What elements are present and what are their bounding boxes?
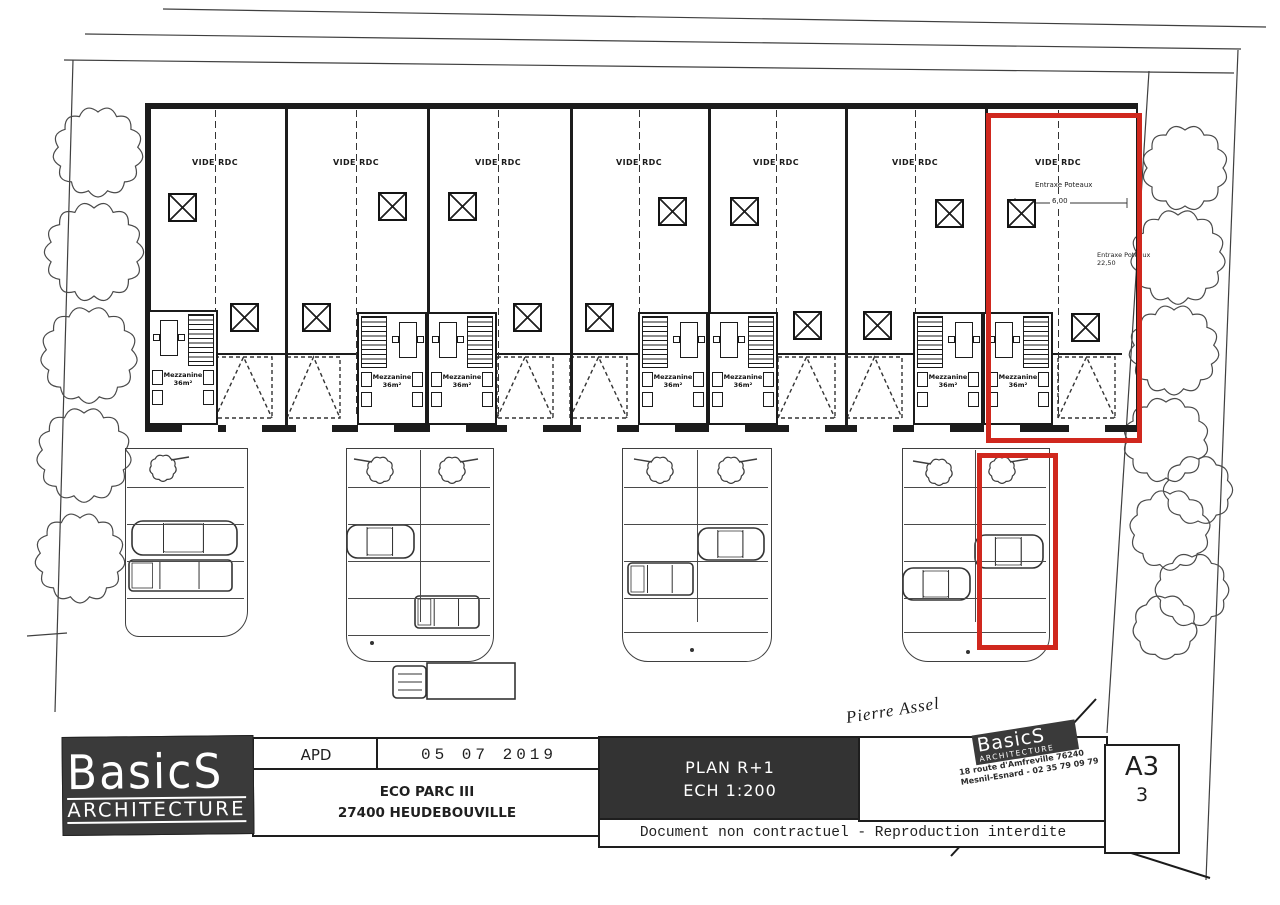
stairs-icon [748,316,774,368]
tree-icon [41,308,137,404]
meeting-table-icon [680,322,698,358]
project-name: ECO PARC III [380,782,474,803]
bay-divider-wall [845,103,848,425]
parking-block [125,448,248,637]
tree-icon [1130,491,1210,570]
parking-column-divider [697,450,698,622]
vide-rdc-label: VIDE RDC [741,158,811,168]
facade-line [778,353,913,355]
meeting-table-icon [439,322,457,358]
plan-title-box: PLAN R+1 ECH 1:200 [598,736,862,822]
desk-icon [431,392,442,407]
vide-rdc-label: VIDE RDC [880,158,950,168]
desk-icon [412,392,423,407]
mezzanine-label: Mezzanine36m² [713,374,773,390]
tree-icon [1129,306,1218,395]
facade-line [218,353,357,355]
door-gap [857,425,893,432]
facade-line [497,353,638,355]
meeting-table-icon [399,322,417,358]
door-gap [709,425,745,432]
stairs-icon [642,316,668,368]
site-boundary-line [1206,50,1238,880]
desk-icon [152,390,163,405]
mezzanine-label: Mezzanine36m² [362,374,422,390]
tree-icon [44,203,143,300]
roof-hatch-icon [378,192,407,221]
loading-door-icon [778,357,835,418]
door-gap [581,425,617,432]
phase-cell: APD [252,737,380,772]
vide-rdc-label: VIDE RDC [604,158,674,168]
stairs-icon [188,314,214,366]
parking-stall-line [127,524,244,525]
tree-icon [1143,126,1226,209]
door-gap [789,425,825,432]
roof-hatch-icon [585,303,614,332]
roof-hatch-icon [168,193,197,222]
parking-stall-line [624,561,768,562]
tree-icon [53,108,142,197]
roof-hatch-icon [935,199,964,228]
door-gap [430,425,466,432]
logo: BasicS ARCHITECTURE [61,735,254,836]
parking-column-divider [420,450,421,622]
date-cell: 05 07 2019 [376,737,602,772]
parking-stall-line [624,632,768,633]
parking-stall-line [624,524,768,525]
sheet-number: 3 [1136,784,1148,806]
mezzanine-room: Mezzanine36m² [638,312,708,425]
desk-icon [361,392,372,407]
plan-scale: ECH 1:200 [683,779,777,802]
desk-icon [712,392,723,407]
tree-icon [35,514,124,603]
mezzanine-label: Mezzanine36m² [432,374,492,390]
loading-door-icon [215,357,272,418]
mezzanine-room: Mezzanine36m² [357,312,427,425]
site-boundary-line [55,60,73,712]
loading-door-icon [287,357,340,418]
highlight-box [986,113,1142,443]
parking-stall-line [348,524,490,525]
door-gap [507,425,543,432]
roof-hatch-icon [230,303,259,332]
parking-stall-line [127,598,244,599]
tree-icon [37,409,131,502]
highlight-box [977,453,1058,650]
desk-icon [203,390,214,405]
tree-icon [1133,596,1197,659]
roof-hatch-icon [658,197,687,226]
vide-rdc-label: VIDE RDC [180,158,250,168]
parking-stall-line [348,487,490,488]
desk-icon [917,392,928,407]
site-boundary-line [163,9,1266,27]
loading-door-icon [570,357,627,418]
desk-icon [968,392,979,407]
door-gap [639,425,675,432]
meeting-table-icon [160,320,178,356]
project-cell: ECO PARC III 27400 HEUDEBOUVILLE [252,768,602,837]
loading-door-icon [497,357,553,418]
door-gap [182,425,218,432]
site-boundary-line [64,60,1234,73]
door-gap [358,425,394,432]
building-top-wall [145,103,1138,109]
mezzanine-label: Mezzanine36m² [918,374,978,390]
desk-icon [763,392,774,407]
stairs-icon [467,316,493,368]
bay-divider-wall [285,103,288,425]
scanned-plan-page: BasicS ARCHITECTURE APD 05 07 2019 ECO P… [0,0,1280,905]
mezzanine-room: Mezzanine36m² [148,310,218,425]
roof-hatch-icon [513,303,542,332]
logo-name: BasicS [67,748,253,797]
parking-stall-line [348,561,490,562]
roof-hatch-icon [448,192,477,221]
desk-icon [482,392,493,407]
parking-stall-line [624,487,768,488]
parking-stall-line [348,598,490,599]
mezzanine-label: Mezzanine36m² [153,372,213,388]
roof-hatch-icon [302,303,331,332]
bay-centerline [498,110,499,416]
parking-column-divider [975,450,976,622]
stairs-icon [917,316,943,368]
mezzanine-room: Mezzanine36m² [427,312,497,425]
bay-divider-wall [570,103,573,425]
meeting-table-icon [955,322,973,358]
vide-rdc-label: VIDE RDC [321,158,391,168]
meeting-table-icon [720,322,738,358]
plan-title: PLAN R+1 [685,756,775,779]
roof-hatch-icon [863,311,892,340]
mezzanine-label: Mezzanine36m² [643,374,703,390]
roof-hatch-icon [793,311,822,340]
door-gap [226,425,262,432]
truck-icon [393,663,515,699]
mezzanine-room: Mezzanine36m² [708,312,778,425]
parking-stall-line [348,635,490,636]
roof-hatch-icon [730,197,759,226]
site-boundary-line [85,34,1241,49]
project-city: 27400 HEUDEBOUVILLE [338,803,516,824]
mezzanine-room: Mezzanine36m² [913,312,983,425]
loading-door-icon [847,357,902,418]
parking-stall-line [624,598,768,599]
door-gap [914,425,950,432]
site-boundary-line [27,633,67,636]
stairs-icon [361,316,387,368]
door-gap [296,425,332,432]
disclaimer-text: Document non contractuel - Reproduction … [598,818,1108,848]
parking-stall-line [127,561,244,562]
desk-icon [642,392,653,407]
vide-rdc-label: VIDE RDC [463,158,533,168]
desk-icon [693,392,704,407]
parking-stall-line [127,487,244,488]
